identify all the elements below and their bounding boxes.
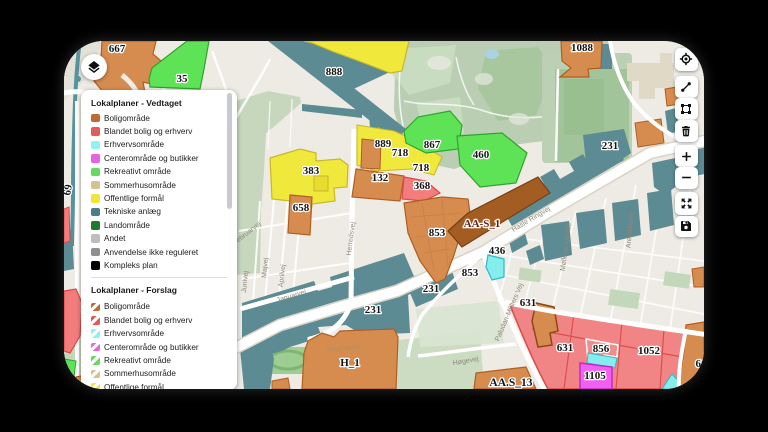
- svg-text:867: 867: [424, 139, 441, 151]
- svg-text:1088: 1088: [571, 42, 594, 54]
- svg-text:AA-S_1: AA-S_1: [464, 218, 501, 230]
- svg-text:667: 667: [109, 43, 126, 55]
- svg-text:460: 460: [473, 149, 490, 161]
- svg-text:368: 368: [414, 180, 431, 192]
- svg-text:436: 436: [489, 245, 506, 257]
- svg-text:853: 853: [462, 267, 479, 279]
- svg-text:231: 231: [602, 140, 619, 152]
- svg-text:888: 888: [326, 66, 343, 78]
- svg-text:231: 231: [365, 304, 382, 316]
- svg-text:35: 35: [177, 73, 189, 85]
- svg-text:H_1: H_1: [340, 357, 360, 369]
- svg-text:132: 132: [372, 172, 389, 184]
- svg-text:631: 631: [557, 342, 574, 354]
- svg-text:658: 658: [293, 202, 310, 214]
- svg-text:718: 718: [413, 162, 430, 174]
- svg-text:66: 66: [696, 358, 705, 370]
- svg-text:1105: 1105: [584, 370, 606, 382]
- svg-text:631: 631: [520, 297, 537, 309]
- svg-text:231: 231: [423, 283, 440, 295]
- svg-text:AA.S_13: AA.S_13: [489, 377, 532, 389]
- svg-text:853: 853: [429, 227, 446, 239]
- svg-text:383: 383: [303, 165, 320, 177]
- svg-text:1052: 1052: [638, 345, 661, 357]
- svg-text:856: 856: [593, 343, 610, 355]
- svg-text:718: 718: [392, 147, 409, 159]
- svg-text:889: 889: [375, 138, 392, 150]
